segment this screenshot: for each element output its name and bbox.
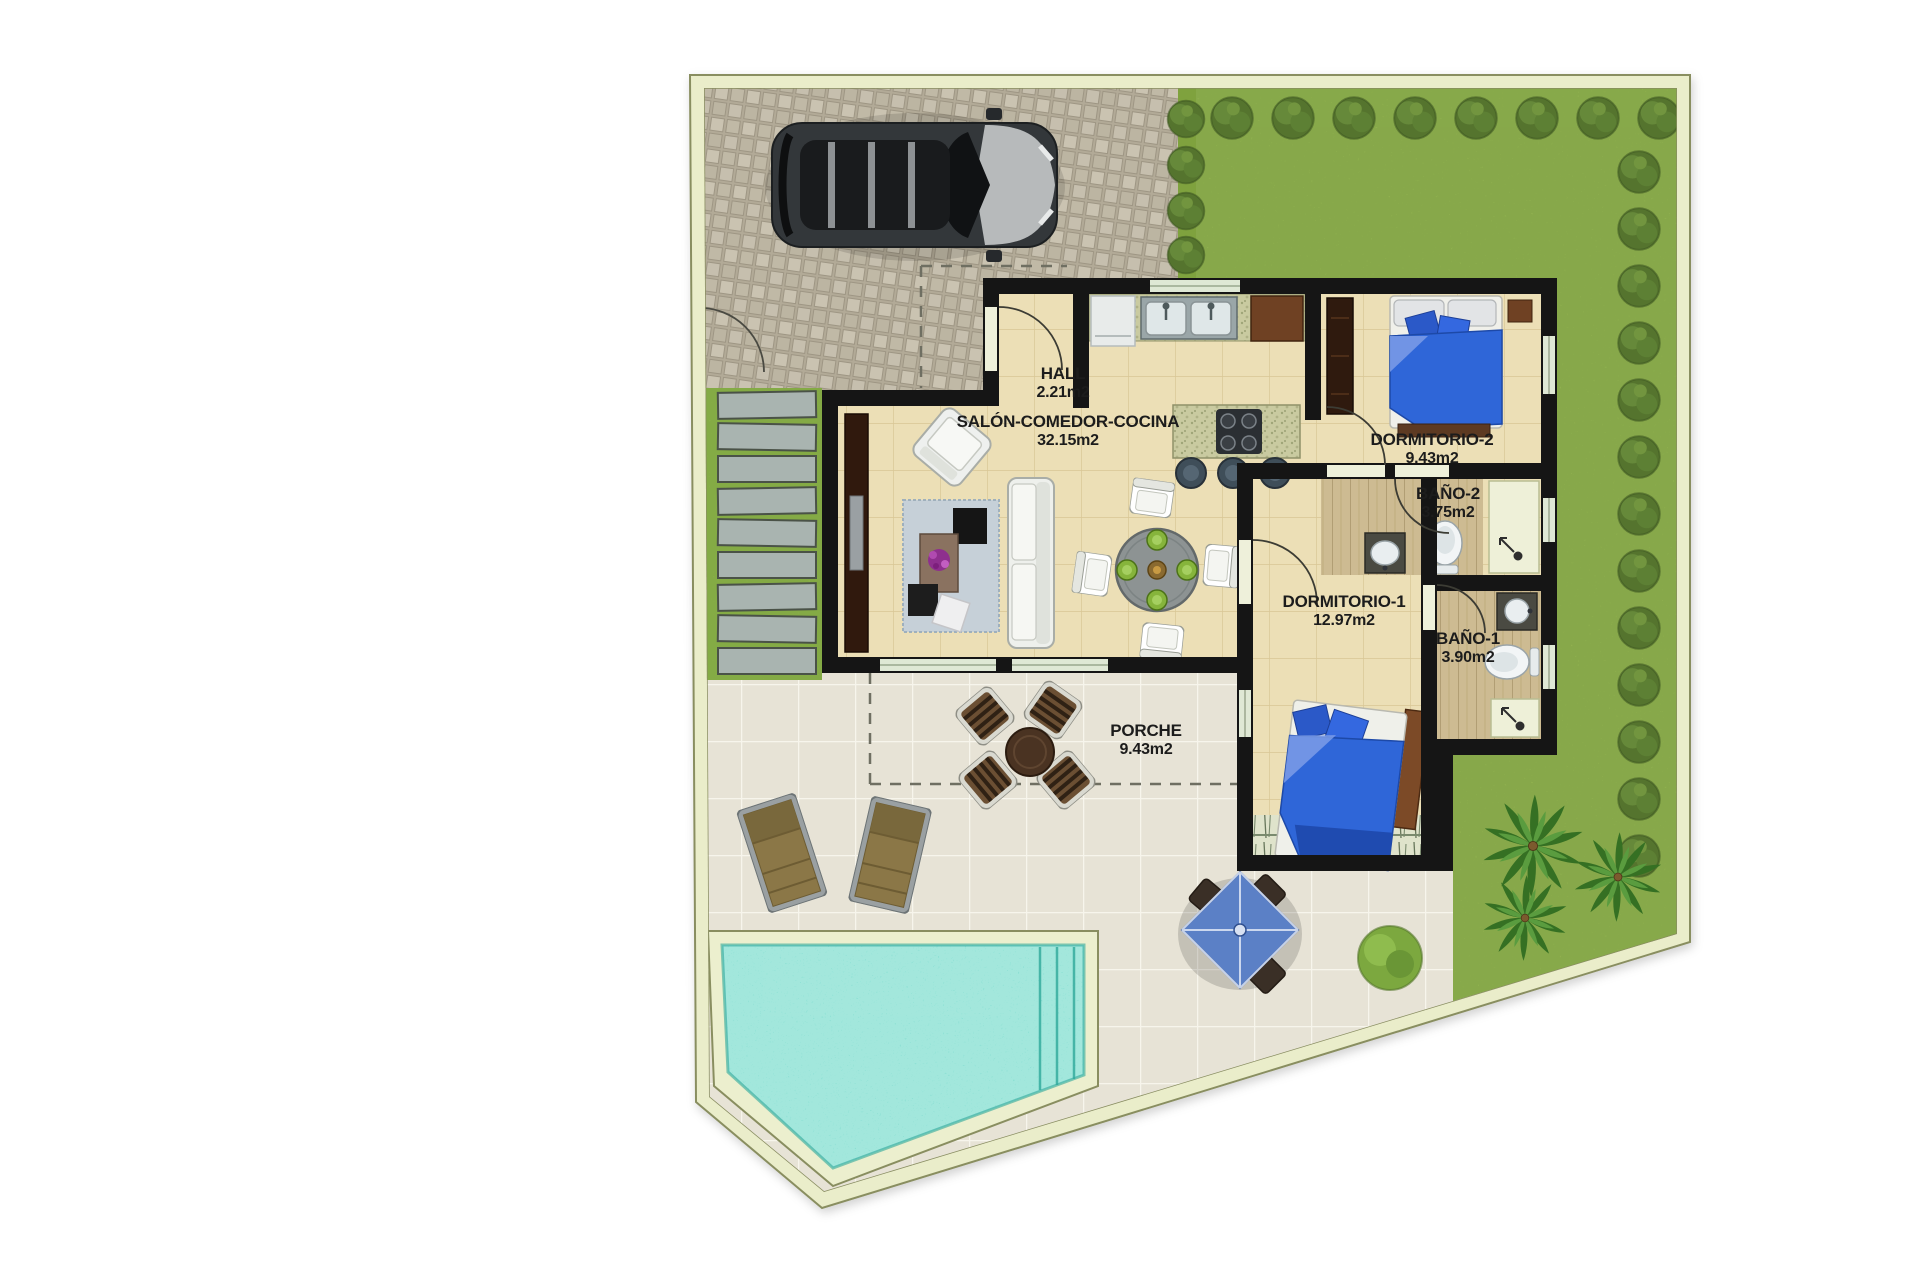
room-area: 3.75m2 [1416,503,1480,522]
room-name: HALL [1036,364,1089,383]
room-area: 32.15m2 [957,431,1180,450]
room-area: 2.21m2 [1036,383,1089,402]
double-sink [1141,297,1237,339]
room-label-porche: PORCHE 9.43m2 [1110,721,1182,759]
room-name: BAÑO-1 [1436,629,1500,648]
room-area: 9.43m2 [1371,449,1494,468]
tv [850,496,863,570]
room-label-dormitorio1: DORMITORIO-1 12.97m2 [1283,592,1406,630]
room-name: PORCHE [1110,721,1182,740]
utility-pad-2 [1491,699,1539,737]
bano2-basin [1365,533,1405,573]
bano1-basin [1497,593,1537,630]
patio-bush [1358,926,1422,990]
room-name: SALÓN-COMEDOR-COCINA [957,412,1180,431]
kitchen-cabinet [1251,296,1303,341]
room-label-bano2: BAÑO-2 3.75m2 [1416,484,1480,522]
room-name: BAÑO-2 [1416,484,1480,503]
floor-plan-page: HALL 2.21m2 SALÓN-COMEDOR-COCINA 32.15m2… [0,0,1920,1280]
room-name: DORMITORIO-2 [1371,430,1494,449]
room-label-hall: HALL 2.21m2 [1036,364,1089,402]
floor-plan-graphic [0,0,1920,1280]
room-label-bano1: BAÑO-1 3.90m2 [1436,629,1500,667]
side-table [1508,300,1532,322]
kitchen-counter [1089,294,1305,346]
room-area: 9.43m2 [1110,740,1182,759]
paver-path [718,391,816,674]
room-name: DORMITORIO-1 [1283,592,1406,611]
rug [903,500,999,632]
appliance [1091,296,1135,346]
room-area: 3.90m2 [1436,648,1500,667]
car [765,108,1065,262]
utility-pad-1 [1489,481,1539,573]
sofa [1008,478,1054,648]
room-area: 12.97m2 [1283,611,1406,630]
room-label-dormitorio2: DORMITORIO-2 9.43m2 [1371,430,1494,468]
plot [690,75,1690,1215]
room-label-salon: SALÓN-COMEDOR-COCINA 32.15m2 [957,412,1180,450]
